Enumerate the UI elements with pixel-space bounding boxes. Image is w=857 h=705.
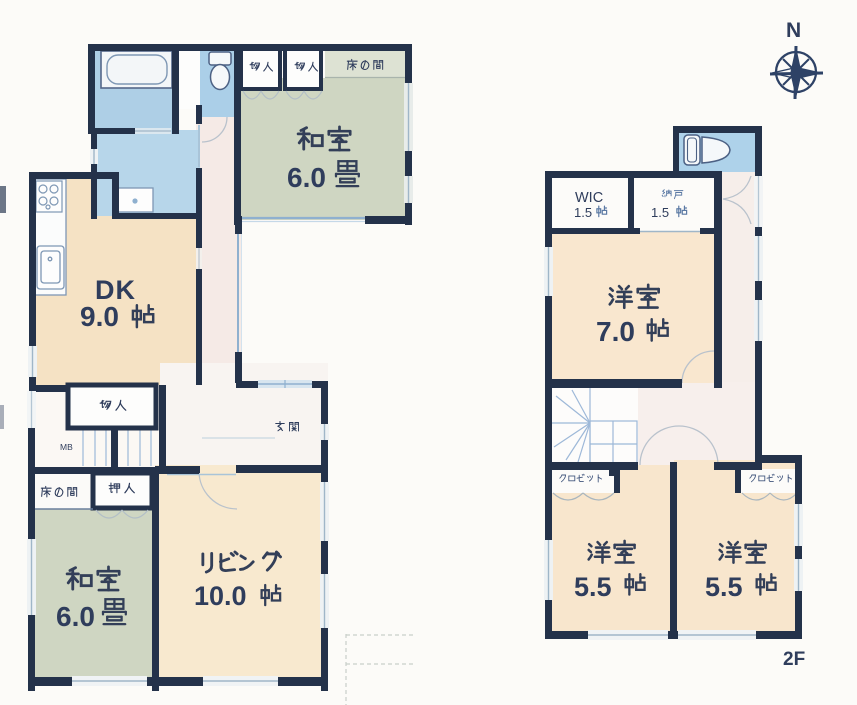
svg-text:2F: 2F	[783, 649, 805, 670]
svg-text:6.0: 6.0	[56, 601, 95, 632]
svg-text:6.0: 6.0	[287, 162, 326, 193]
svg-text:9.0: 9.0	[80, 301, 119, 332]
svg-text:7.0: 7.0	[596, 316, 635, 347]
svg-text:N: N	[786, 19, 801, 42]
svg-text:5.5: 5.5	[574, 572, 612, 602]
svg-text:MB: MB	[60, 442, 73, 452]
svg-text:10.0: 10.0	[194, 581, 247, 611]
svg-text:1.5: 1.5	[574, 205, 592, 220]
svg-text:5.5: 5.5	[705, 572, 743, 602]
svg-text:1.5: 1.5	[651, 205, 669, 220]
svg-text:WIC: WIC	[575, 190, 603, 206]
